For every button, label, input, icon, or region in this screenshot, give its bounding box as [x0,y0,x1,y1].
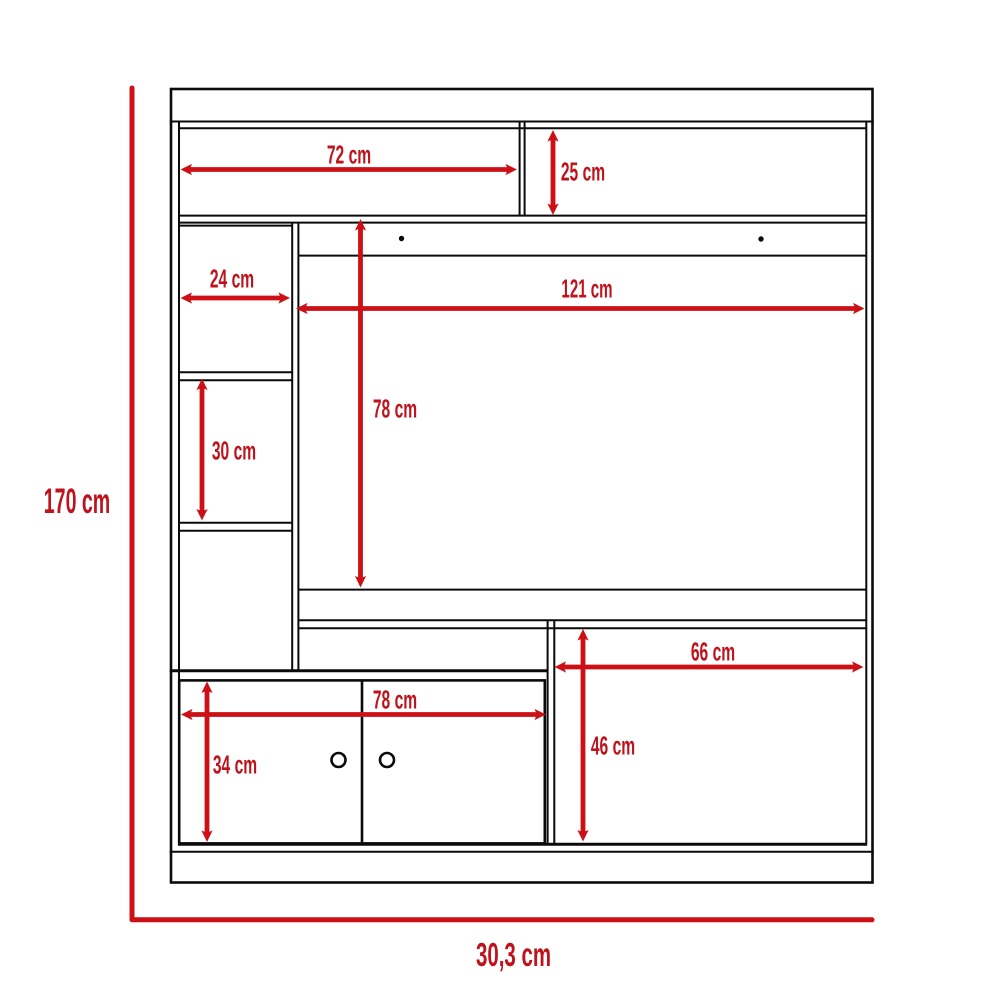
svg-text:66 cm: 66 cm [691,637,735,666]
svg-text:72 cm: 72 cm [327,140,371,169]
svg-text:30 cm: 30 cm [212,436,256,465]
svg-text:78 cm: 78 cm [373,685,417,714]
svg-text:24 cm: 24 cm [210,264,254,293]
svg-text:25 cm: 25 cm [561,157,605,186]
svg-text:34 cm: 34 cm [213,750,257,779]
svg-text:121 cm: 121 cm [561,274,612,303]
svg-text:30,3 cm: 30,3 cm [476,936,551,973]
svg-text:78 cm: 78 cm [373,394,417,423]
svg-text:46 cm: 46 cm [591,731,635,760]
svg-text:170 cm: 170 cm [44,482,110,521]
